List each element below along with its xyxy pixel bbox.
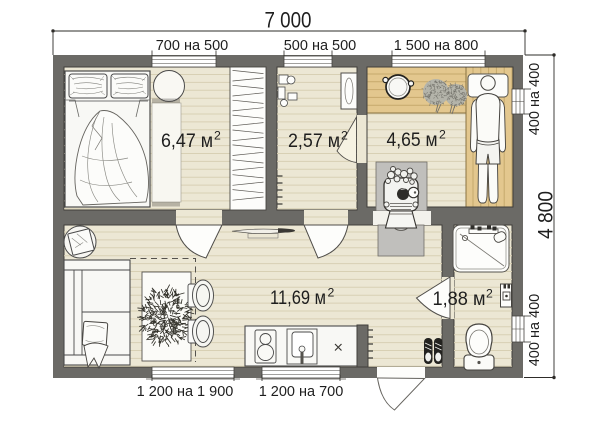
svg-text:1 200 на 700: 1 200 на 700	[259, 384, 344, 400]
svg-text:4,65 м: 4,65 м	[387, 129, 438, 151]
svg-text:6,47 м: 6,47 м	[161, 130, 213, 152]
svg-text:500 на 500: 500 на 500	[284, 38, 357, 54]
svg-text:2,57 м: 2,57 м	[288, 130, 340, 152]
svg-text:1 500 на 800: 1 500 на 800	[394, 38, 479, 54]
svg-text:1 200 на 1 900: 1 200 на 1 900	[137, 384, 234, 400]
svg-text:2: 2	[328, 286, 335, 300]
svg-text:4 800: 4 800	[534, 191, 558, 239]
svg-text:2: 2	[341, 129, 348, 143]
svg-text:400 на 400: 400 на 400	[527, 63, 543, 136]
svg-text:7 000: 7 000	[265, 8, 312, 33]
svg-text:11,69 м: 11,69 м	[270, 287, 326, 309]
svg-text:400 на 400: 400 на 400	[527, 294, 543, 367]
svg-text:1,88 м: 1,88 м	[433, 288, 486, 310]
svg-text:700 на 500: 700 на 500	[156, 38, 229, 54]
svg-text:2: 2	[486, 287, 493, 301]
svg-text:2: 2	[214, 129, 221, 143]
svg-text:2: 2	[439, 128, 446, 142]
